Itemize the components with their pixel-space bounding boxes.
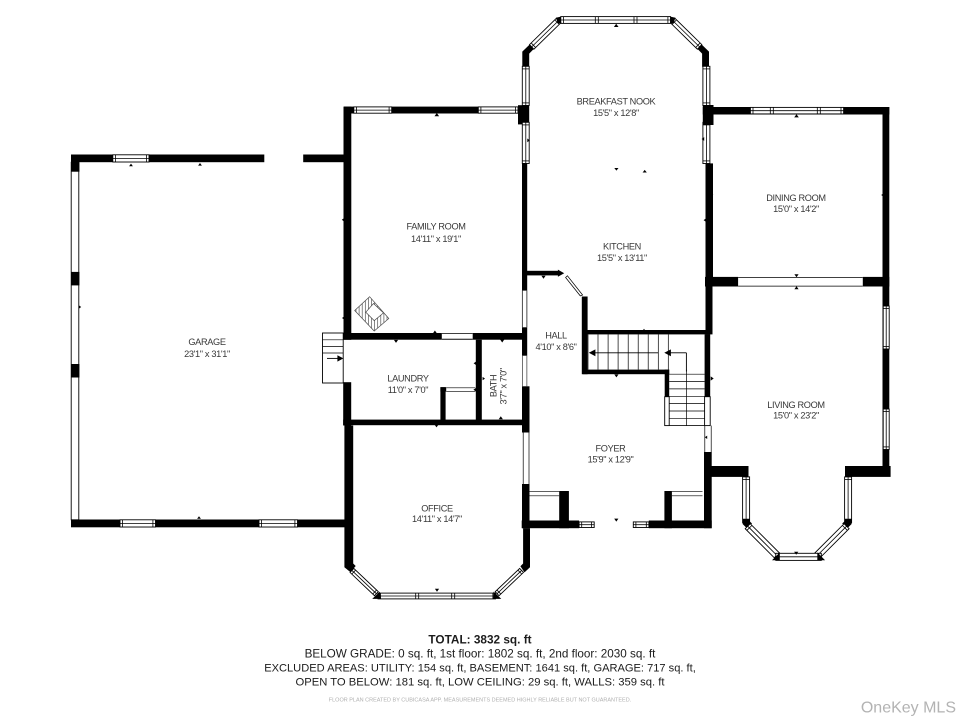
svg-text:15'0" x 23'2": 15'0" x 23'2" (773, 411, 819, 421)
svg-text:15'9" x 12'9": 15'9" x 12'9" (588, 454, 634, 464)
svg-text:HALL: HALL (545, 331, 567, 341)
svg-text:11'0" x 7'0": 11'0" x 7'0" (388, 385, 428, 395)
svg-text:DINING ROOM: DINING ROOM (766, 193, 825, 203)
svg-text:14'11" x 14'7": 14'11" x 14'7" (412, 514, 462, 524)
svg-text:14'11" x 19'1": 14'11" x 19'1" (411, 234, 461, 244)
svg-text:BATH: BATH (489, 375, 499, 397)
svg-text:15'0" x 14'2": 15'0" x 14'2" (773, 204, 819, 214)
svg-text:OFFICE: OFFICE (421, 504, 453, 514)
svg-text:OPEN TO BELOW: 181 sq. ft, LOW: OPEN TO BELOW: 181 sq. ft, LOW CEILING: … (295, 677, 665, 689)
svg-text:FAMILY ROOM: FAMILY ROOM (406, 222, 465, 232)
svg-text:LIVING ROOM: LIVING ROOM (767, 400, 824, 410)
svg-text:4'10" x 8'6": 4'10" x 8'6" (535, 342, 576, 352)
svg-text:FLOOR PLAN CREATED BY CUBICASA: FLOOR PLAN CREATED BY CUBICASA APP. MEAS… (329, 698, 632, 704)
svg-text:23'1" x 31'1": 23'1" x 31'1" (184, 349, 230, 359)
svg-text:15'5" x 13'11": 15'5" x 13'11" (597, 253, 647, 263)
svg-text:LAUNDRY: LAUNDRY (387, 374, 429, 384)
svg-text:BREAKFAST NOOK: BREAKFAST NOOK (577, 97, 657, 107)
svg-text:FOYER: FOYER (596, 443, 627, 453)
svg-text:KITCHEN: KITCHEN (603, 242, 641, 252)
svg-text:TOTAL: 3832 sq. ft: TOTAL: 3832 sq. ft (428, 633, 531, 647)
svg-text:BELOW GRADE: 0 sq. ft, 1st flo: BELOW GRADE: 0 sq. ft, 1st floor: 1802 s… (305, 648, 657, 661)
svg-text:OneKey MLS: OneKey MLS (861, 700, 956, 717)
svg-text:GARAGE: GARAGE (188, 337, 225, 347)
svg-text:EXCLUDED AREAS: UTILITY: 154 s: EXCLUDED AREAS: UTILITY: 154 sq. ft, BAS… (264, 663, 696, 675)
svg-text:15'5" x 12'8": 15'5" x 12'8" (593, 108, 639, 118)
svg-text:3'7" x 7'0": 3'7" x 7'0" (499, 368, 509, 404)
